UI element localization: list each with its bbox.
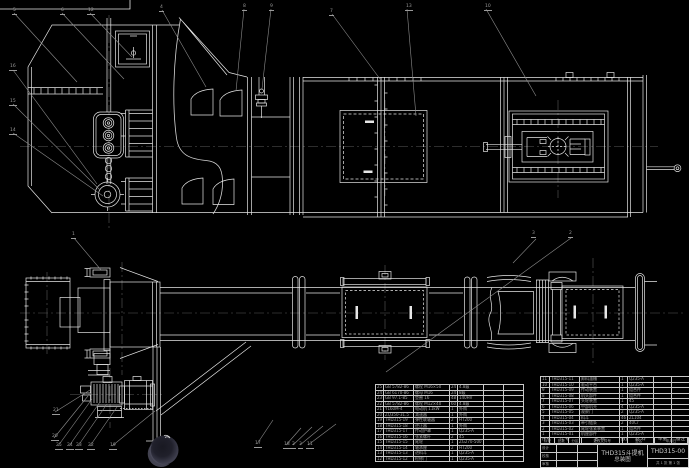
cad-drawing-canvas: 5612489713101615141322120252423221917182… [0,0,689,468]
head-drive-frame [509,111,608,182]
revision-header-cell: 更改文件号 [582,438,622,443]
balloon-2: 2 [291,443,296,449]
title-block: 设计校核审核 THD315斗提机 总装图 THD315-00 共 1 张 第 1… [540,444,689,468]
bom-cell: 1 [450,456,458,462]
balloon-12: 12 [87,9,95,15]
balloon-3: 3 [531,232,536,238]
balloon-7: 7 [329,10,334,16]
approval-row: 校核 [541,453,597,461]
approval-cell: 设计 [541,445,557,452]
drive-shaft [484,137,523,158]
bom-cell: Q235-A [458,456,484,462]
revision-header-cell: 标记 [541,438,555,443]
approval-cell: 校核 [541,453,557,460]
balloon-17: 17 [254,442,262,448]
tension-rod [628,75,681,217]
logo-watermark [148,435,179,467]
top-rail [303,73,643,82]
balloon-19: 19 [109,444,117,450]
drive-unit [81,342,252,441]
balloon-1: 1 [71,233,76,239]
balloon-16: 16 [9,65,17,71]
product-title: THD315斗提机 [601,450,643,457]
balloon-25: 25 [55,444,63,450]
sheet-info: 共 1 张 第 1 张 [648,459,688,467]
balloon-8: 8 [242,5,247,11]
takeup-chain-assembly [94,112,124,180]
balloon-14: 14 [9,129,17,135]
motor [125,377,155,410]
drawing-number: THD315-00 [648,445,688,459]
approval-cell [578,445,597,452]
bom-row: 12THD315-12检修门1Q235-A [376,456,524,462]
bom-cell: 12 [376,456,384,462]
balloon-11: 11 [306,443,314,449]
balloon-24: 24 [66,444,74,450]
balloon-23: 23 [75,444,83,450]
balloon-6: 6 [60,9,65,15]
front-view [28,18,681,218]
balloon-3: 3 [298,443,303,449]
balloon-20: 20 [51,435,59,441]
approval-grid: 设计校核审核 [541,445,598,467]
approval-cell [578,461,597,468]
balloon-2: 2 [568,232,573,238]
approval-row: 设计 [541,445,597,453]
revision-header-cell: 处数 [555,438,569,443]
balloon-4: 4 [159,6,164,12]
frame-corner [0,0,130,9]
bom-cell: ZG270-500 [458,440,484,446]
centerlines [20,15,683,428]
bom-table-main-parts: 11THD315-11卸料溜槽1Q235-A10THD315-10驱动平台1Q2… [540,376,689,445]
balloon-10: 10 [484,5,492,11]
bom-cell [484,456,504,462]
approval-cell: 审核 [541,461,557,468]
balloon-9: 9 [269,5,274,11]
revision-header-row: 标记处数分区更改文件号签名年月日 [540,437,689,444]
revision-header-cell: 分区 [569,438,583,443]
balloon-21: 21 [52,409,60,415]
bom-table-standard-parts: 25GB 5782-86螺栓 M16×50244.8级24GB 6170-86螺… [375,384,524,462]
leader-lines [13,9,571,446]
balloon-13: 13 [405,5,413,11]
boot-access-door [116,31,150,67]
revision-header-cell: 签名 [623,438,656,443]
approval-cell [557,453,579,460]
drawing-number-column: THD315-00 共 1 张 第 1 张 [648,445,688,467]
drawing-title-cell: THD315斗提机 总装图 [598,445,648,467]
balloon-18: 18 [283,443,291,449]
bom-cell [504,456,524,462]
bom-cell: 检修门 [414,456,450,462]
guide-frames [121,110,153,211]
bom-cell: THD315-12 [384,456,414,462]
approval-cell [557,445,579,452]
balloon-15: 15 [9,100,17,106]
boot-rail [28,88,103,95]
reducer [91,377,122,406]
drawing-title: 总装图 [614,457,631,463]
approval-row: 审核 [541,461,597,468]
balloon-22: 22 [87,444,95,450]
bucket-bolt-detail [256,77,268,118]
revision-header-cell: 年月日 [655,438,688,443]
approval-cell [578,453,597,460]
approval-cell [557,461,579,468]
balloon-5: 5 [12,9,17,15]
